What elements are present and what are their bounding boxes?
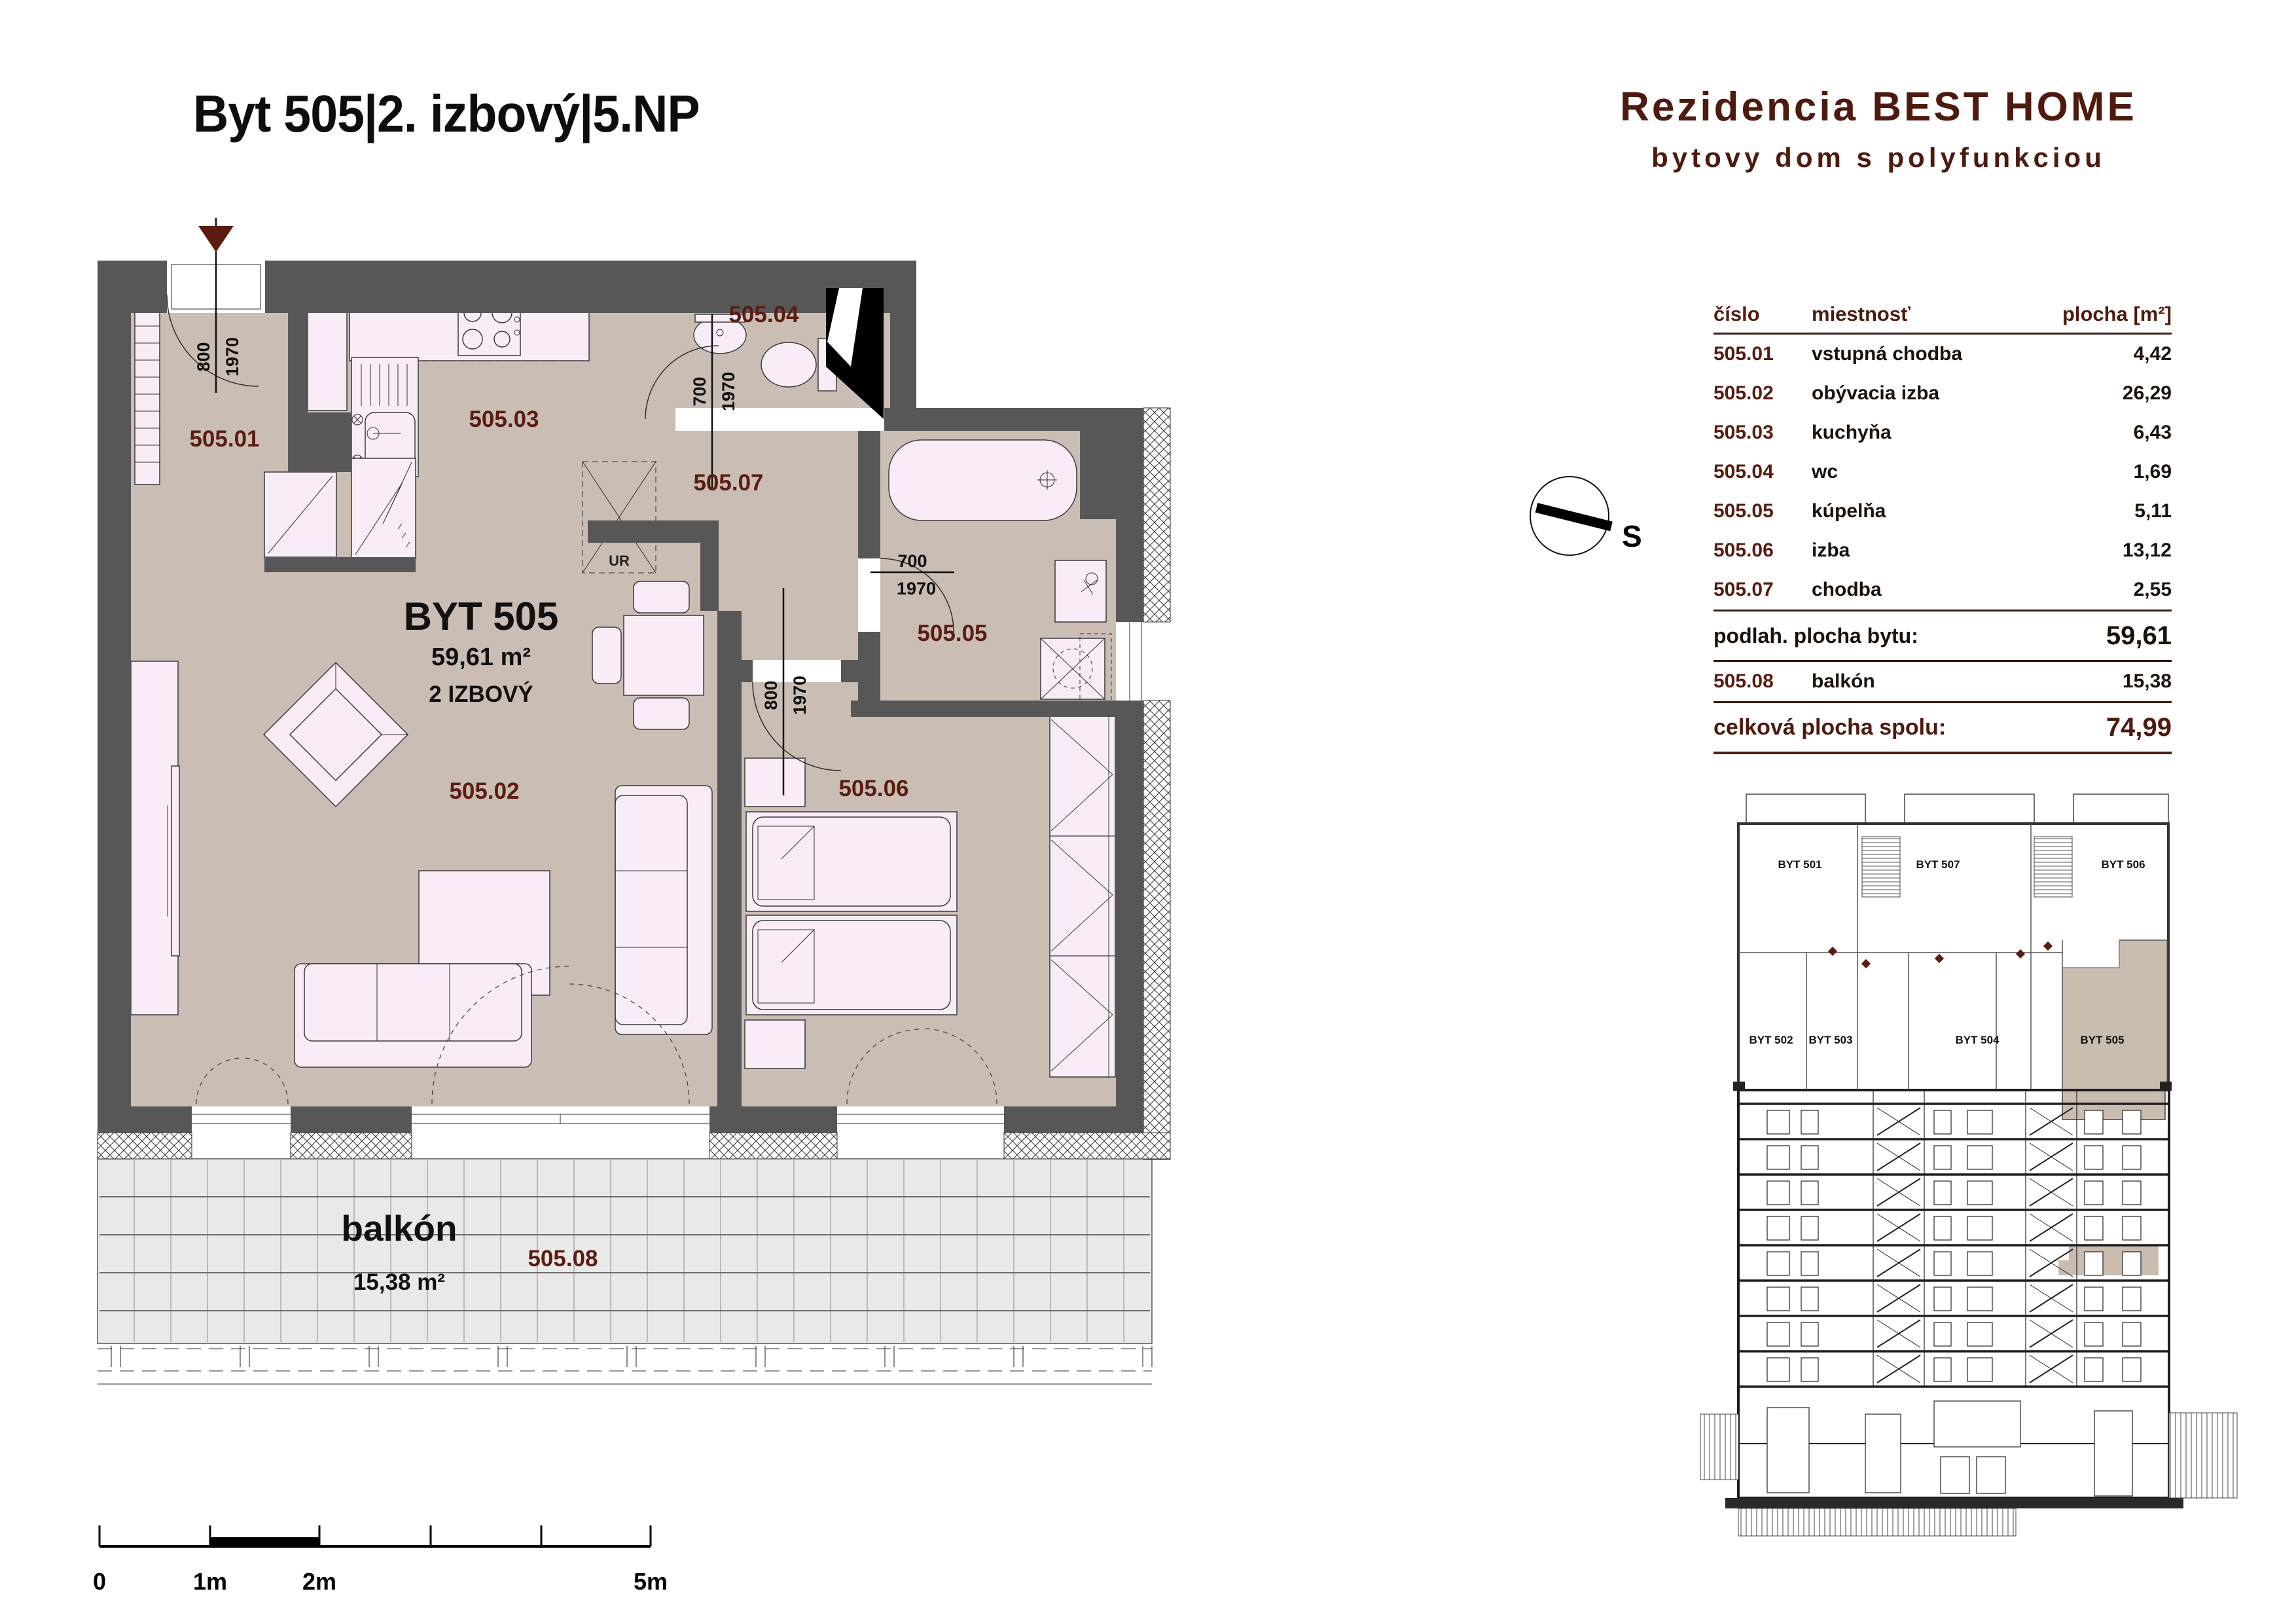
- loveseat-icon: [615, 786, 712, 1034]
- window-icon: [192, 1114, 291, 1123]
- table-row: 505.03 kuchyňa 6,43: [1713, 413, 2172, 452]
- building-section: [1689, 1074, 2251, 1545]
- apartment-floor-plan: UR: [85, 210, 1185, 1408]
- room-label: 505.01: [189, 426, 259, 452]
- header-number: číslo: [1713, 302, 1812, 326]
- table-row: 505.04 wc 1,69: [1713, 452, 2172, 492]
- toilet-icon: [761, 342, 816, 387]
- header-area: plocha [m²]: [2060, 302, 2172, 326]
- scale-label: 0: [93, 1568, 106, 1595]
- room-label: 505.06: [838, 776, 908, 801]
- unit-label: BYT 502: [1749, 1034, 1793, 1046]
- svg-text:1970: 1970: [897, 579, 936, 598]
- balcony-name: balkón: [341, 1208, 457, 1249]
- room-label: 505.04: [728, 302, 799, 327]
- balcony-row: 505.08 balkón 15,38: [1713, 662, 2172, 701]
- room-label: 505.07: [693, 470, 763, 496]
- tv-cabinet-icon: [131, 661, 178, 1015]
- compass-south-label: S: [1622, 519, 1642, 553]
- apartment-type: 2 IZBOVÝ: [429, 681, 533, 707]
- window-icon: [837, 1114, 1004, 1123]
- apartment-name: BYT 505: [404, 594, 559, 638]
- stairs-icon: [1862, 837, 1900, 897]
- project-brand: Rezidencia BEST HOME bytovy dom s polyfu…: [1525, 84, 2232, 173]
- bed-icon: [746, 915, 957, 1015]
- unit-label: BYT 505: [2080, 1034, 2124, 1046]
- table-row: 505.05 kúpelňa 5,11: [1713, 492, 2172, 531]
- project-subtitle: bytovy dom s polyfunkciou: [1525, 142, 2232, 173]
- svg-text:1970: 1970: [719, 372, 738, 411]
- svg-text:700: 700: [690, 376, 709, 406]
- page-title: Byt 505|2. izbový|5.NP: [193, 84, 700, 144]
- scale-bar: 0 1m 2m 5m: [79, 1512, 681, 1604]
- svg-text:700: 700: [897, 551, 927, 571]
- room-label: 505.03: [469, 407, 539, 432]
- apartment-area: 59,61 m²: [431, 644, 531, 671]
- unit-label: BYT 506: [2101, 858, 2145, 871]
- room-label: 505.05: [917, 621, 987, 646]
- table-row: 505.01 vstupná chodba 4,42: [1713, 335, 2172, 374]
- floor-plan-sheet: { "header": { "apartment_title": "Byt 50…: [0, 0, 2296, 1623]
- total-row: celková plocha spolu: 74,99: [1713, 703, 2172, 752]
- sofa-icon: [295, 964, 531, 1067]
- balcony-area: 15,38 m²: [353, 1269, 445, 1295]
- project-title: Rezidencia BEST HOME: [1525, 84, 2232, 130]
- scale-label: 5m: [634, 1568, 668, 1595]
- svg-text:1970: 1970: [223, 337, 242, 376]
- bath-sink-icon: [1055, 560, 1106, 622]
- room-label: 505.02: [449, 778, 519, 804]
- compass: S: [1518, 465, 1689, 576]
- nightstand-icon: [745, 1020, 805, 1068]
- svg-text:800: 800: [194, 342, 213, 371]
- scale-label: 2m: [302, 1568, 336, 1595]
- scale-label: 1m: [193, 1568, 227, 1595]
- unit-label: BYT 504: [1955, 1034, 2000, 1046]
- entry-hall: [135, 293, 160, 484]
- nightstand-icon: [745, 758, 805, 807]
- tv-icon: [171, 766, 179, 956]
- table-header: číslo miestnosť plocha [m²]: [1713, 280, 2172, 333]
- entrance-arrow-icon: [198, 226, 234, 252]
- highlighted-unit-section: [2069, 1245, 2159, 1275]
- table-row: 505.06 izba 13,12: [1713, 531, 2172, 570]
- svg-text:800: 800: [761, 680, 781, 710]
- window-icon: [412, 1114, 709, 1123]
- stairs-icon: [2034, 837, 2072, 897]
- unit-label: BYT 503: [1808, 1034, 1852, 1046]
- room-area-table: číslo miestnosť plocha [m²] 505.01 vstup…: [1713, 280, 2172, 754]
- unit-label: BYT 507: [1916, 858, 1960, 871]
- fridge-icon: [308, 298, 347, 410]
- room-label: 505.08: [528, 1246, 598, 1271]
- table-row: 505.07 chodba 2,55: [1713, 570, 2172, 610]
- wardrobe-icon: [1050, 716, 1115, 1077]
- washing-machine-icon: [1041, 634, 1111, 703]
- balcony-area: [98, 1159, 1152, 1384]
- subtotal-row: podlah. plocha bytu: 59,61: [1713, 611, 2172, 660]
- bed-icon: [746, 812, 957, 911]
- unit-label: BYT 501: [1778, 858, 1821, 871]
- compass-needle-icon: [1535, 503, 1613, 531]
- table-row: 505.02 obývacia izba 26,29: [1713, 374, 2172, 413]
- header-room: miestnosť: [1812, 302, 2060, 326]
- closet-icon: [351, 458, 416, 558]
- svg-text:UR: UR: [609, 553, 630, 569]
- svg-text:1970: 1970: [790, 676, 810, 715]
